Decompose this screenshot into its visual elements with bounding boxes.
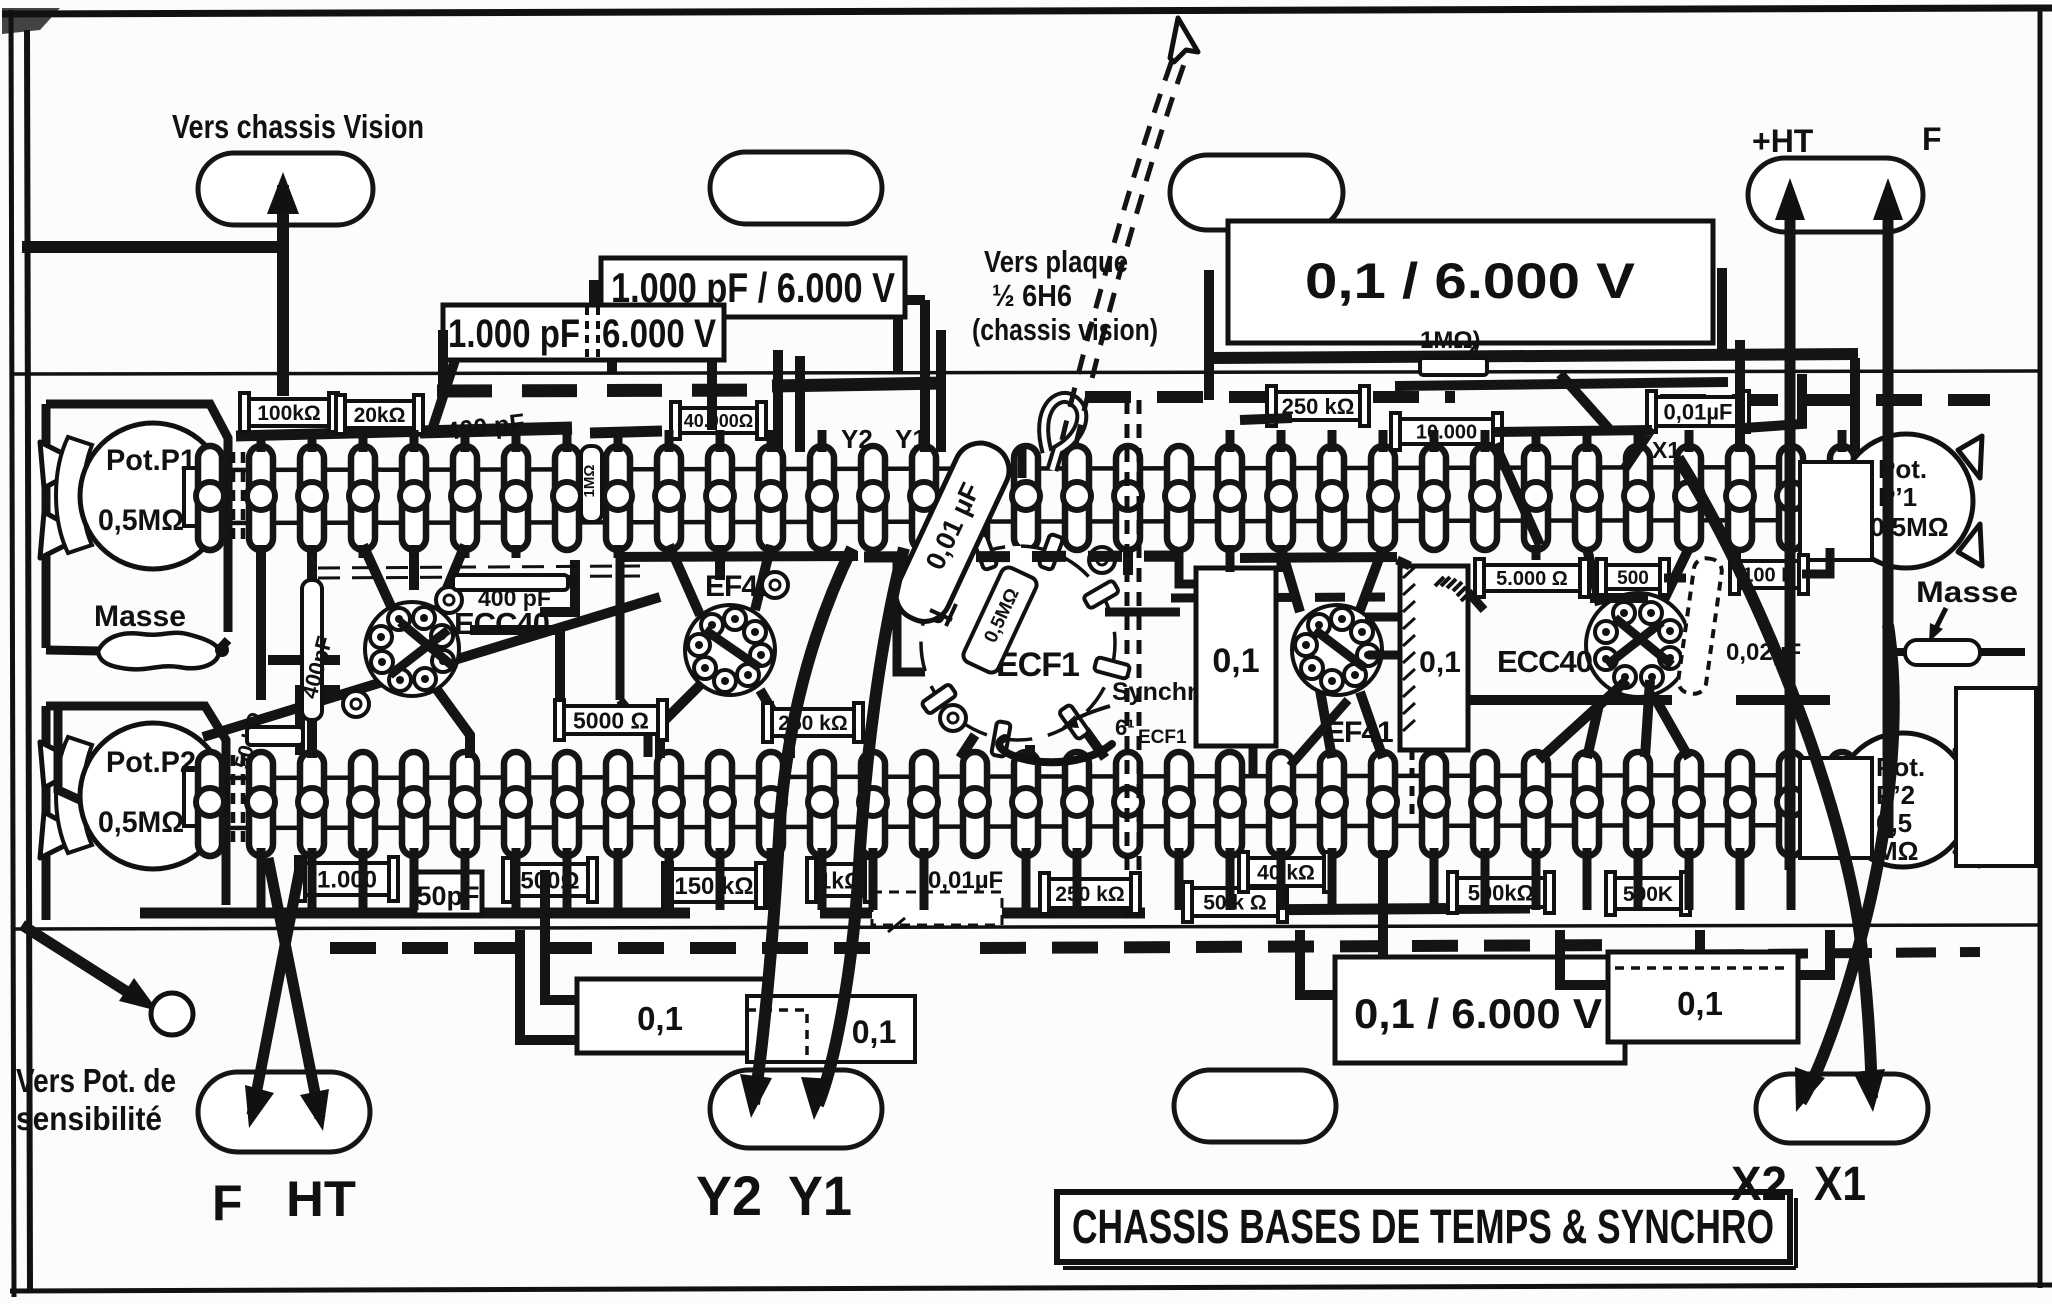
svg-text:Synchr.: Synchr. [1112, 678, 1202, 706]
svg-text:250 kΩ: 250 kΩ [1055, 883, 1124, 906]
svg-text:400 pF: 400 pF [478, 585, 551, 611]
svg-text:CHASSIS BASES DE TEMPS & SYNCH: CHASSIS BASES DE TEMPS & SYNCHRO [1072, 1201, 1774, 1254]
svg-text:sensibilité: sensibilité [16, 1100, 162, 1137]
svg-text:(chassis vision): (chassis vision) [972, 312, 1158, 347]
svg-text:6¹: 6¹ [1115, 715, 1135, 740]
svg-text:0,1 / 6.000 V: 0,1 / 6.000 V [1305, 253, 1636, 309]
svg-text:HT: HT [286, 1171, 356, 1227]
svg-text:Y2: Y2 [696, 1164, 762, 1227]
svg-text:Y2: Y2 [841, 424, 873, 454]
svg-text:0,5MΩ: 0,5MΩ [1870, 512, 1949, 542]
svg-text:0,1: 0,1 [637, 1000, 683, 1037]
svg-text:6.000 V: 6.000 V [602, 312, 716, 356]
svg-text:ECC40: ECC40 [454, 606, 549, 641]
svg-text:40 kΩ: 40 kΩ [1257, 862, 1315, 885]
svg-text:500kΩ: 500kΩ [1468, 880, 1535, 905]
svg-text:1MΩ: 1MΩ [581, 465, 598, 498]
svg-text:5000 Ω: 5000 Ω [573, 707, 649, 733]
svg-text:0,5MΩ: 0,5MΩ [98, 806, 184, 839]
svg-text:1.000: 1.000 [317, 867, 377, 894]
svg-text:0,1: 0,1 [1419, 646, 1461, 679]
svg-text:½ 6H6: ½ 6H6 [992, 278, 1072, 313]
svg-text:100kΩ: 100kΩ [257, 402, 321, 425]
svg-text:150 kΩ: 150 kΩ [674, 873, 753, 900]
svg-text:50pF: 50pF [416, 881, 479, 911]
svg-text:0,1: 0,1 [852, 1014, 896, 1050]
svg-text:X1: X1 [1814, 1158, 1866, 1211]
svg-text:X1: X1 [1652, 437, 1680, 463]
svg-text:10.000: 10.000 [1416, 422, 1477, 444]
svg-text:+HT: +HT [1752, 123, 1814, 159]
svg-text:1.000 pF: 1.000 pF [448, 312, 580, 356]
svg-text:0,1: 0,1 [1212, 642, 1259, 680]
svg-text:0,5MΩ: 0,5MΩ [98, 504, 184, 537]
svg-text:Masse: Masse [94, 600, 186, 633]
svg-text:500K: 500K [1623, 883, 1673, 906]
svg-text:Vers plaque: Vers plaque [984, 244, 1128, 279]
svg-text:250 kΩ: 250 kΩ [1282, 394, 1355, 419]
svg-text:5.000 Ω: 5.000 Ω [1496, 568, 1568, 590]
svg-text:20kΩ: 20kΩ [354, 404, 406, 427]
svg-text:Y1: Y1 [788, 1164, 852, 1227]
svg-text:40.000Ω: 40.000Ω [684, 411, 754, 431]
svg-text:Masse: Masse [1916, 576, 2018, 609]
svg-text:Pot.P1: Pot.P1 [106, 444, 196, 477]
svg-text:X2: X2 [1731, 1158, 1787, 1211]
svg-text:500: 500 [1617, 568, 1649, 589]
svg-text:0,1: 0,1 [1677, 985, 1723, 1022]
svg-text:Vers chassis Vision: Vers chassis Vision [172, 108, 424, 145]
svg-text:0,01µF: 0,01µF [928, 867, 1003, 894]
svg-text:F: F [212, 1175, 243, 1231]
svg-text:0,01µF: 0,01µF [1664, 399, 1733, 424]
svg-text:Vers Pot. de: Vers Pot. de [16, 1062, 176, 1099]
svg-text:Pot.P2: Pot.P2 [106, 746, 196, 779]
svg-text:0,1 / 6.000 V: 0,1 / 6.000 V [1354, 990, 1602, 1037]
svg-text:ECC40: ECC40 [1497, 644, 1592, 679]
svg-text:50 k Ω: 50 k Ω [1203, 892, 1267, 915]
svg-text:F: F [1922, 121, 1942, 157]
svg-text:ECF1: ECF1 [996, 646, 1079, 684]
svg-text:ECF1: ECF1 [1138, 727, 1187, 748]
